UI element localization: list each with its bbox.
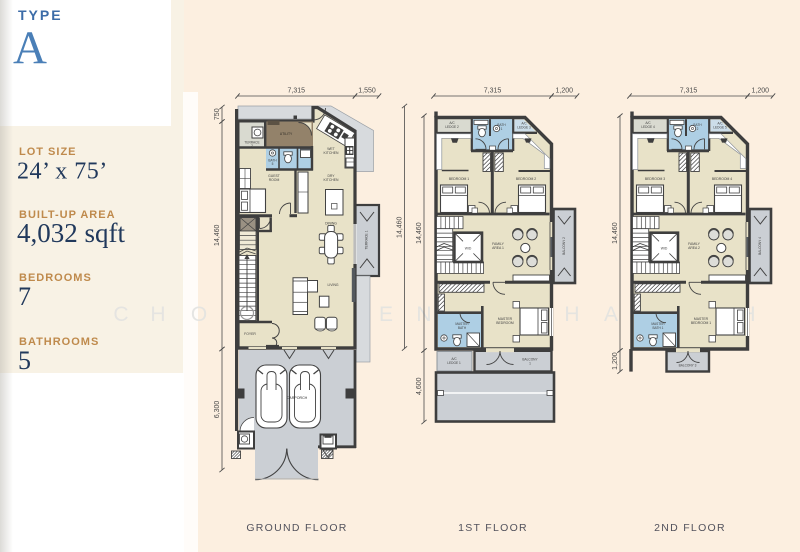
- svg-text:TYPE: TYPE: [18, 7, 63, 23]
- svg-text:LIVING: LIVING: [327, 283, 338, 287]
- svg-text:AREA 2: AREA 2: [688, 246, 700, 250]
- svg-text:BATH: BATH: [458, 326, 467, 330]
- svg-text:5: 5: [272, 162, 274, 166]
- svg-text:GROUND FLOOR: GROUND FLOOR: [246, 522, 347, 534]
- svg-text:BEDROOM 4: BEDROOM 4: [712, 177, 732, 181]
- svg-text:DINING: DINING: [325, 222, 337, 226]
- svg-text:1,550: 1,550: [358, 88, 376, 95]
- svg-text:ROOM: ROOM: [269, 178, 280, 182]
- svg-text:5: 5: [18, 346, 31, 375]
- svg-text:BEDROOM 1: BEDROOM 1: [449, 177, 469, 181]
- svg-text:1ST FLOOR: 1ST FLOOR: [458, 522, 528, 534]
- svg-text:BALCONY 3: BALCONY 3: [679, 364, 697, 368]
- svg-text:7,315: 7,315: [680, 88, 698, 95]
- svg-text:BATH 1: BATH 1: [653, 326, 664, 330]
- svg-text:BEDROOM 3: BEDROOM 3: [645, 177, 665, 181]
- svg-text:LEDGE 4: LEDGE 4: [641, 125, 655, 129]
- svg-text:24’ x 75’: 24’ x 75’: [17, 159, 108, 185]
- svg-text:4,600: 4,600: [416, 377, 423, 395]
- svg-text:4,032 sqft: 4,032 sqft: [17, 218, 125, 248]
- svg-text:LEDGE 2: LEDGE 2: [445, 125, 459, 129]
- svg-text:KITCHEN: KITCHEN: [324, 151, 339, 155]
- svg-text:LEDGE 3: LEDGE 3: [517, 126, 531, 130]
- svg-text:14,460: 14,460: [214, 224, 221, 246]
- svg-text:1,200: 1,200: [612, 352, 619, 370]
- svg-text:2ND FLOOR: 2ND FLOOR: [654, 522, 726, 534]
- svg-text:1: 1: [529, 362, 531, 366]
- svg-text:CARPORCH: CARPORCH: [287, 396, 308, 400]
- svg-text:BEDROOM 1: BEDROOM 1: [691, 321, 711, 325]
- svg-text:WID: WID: [661, 247, 668, 251]
- svg-text:1,200: 1,200: [555, 88, 573, 95]
- svg-text:AREA 1: AREA 1: [492, 246, 504, 250]
- svg-text:14,460: 14,460: [612, 222, 619, 244]
- svg-text:7,315: 7,315: [287, 88, 305, 95]
- svg-text:A: A: [13, 22, 47, 74]
- svg-text:LEDGE 1: LEDGE 1: [447, 361, 461, 365]
- svg-text:O: O: [191, 303, 207, 326]
- svg-text:7: 7: [18, 282, 31, 311]
- svg-text:A: A: [604, 303, 618, 326]
- svg-text:KITCHEN: KITCHEN: [324, 178, 339, 182]
- svg-text:1,200: 1,200: [751, 88, 769, 95]
- svg-text:BALCONY 4: BALCONY 4: [758, 237, 762, 255]
- svg-text:14,460: 14,460: [397, 216, 404, 238]
- svg-text:BEDROOM 2: BEDROOM 2: [516, 177, 536, 181]
- svg-text:WID: WID: [465, 247, 472, 251]
- svg-text:1: 1: [501, 127, 503, 131]
- svg-text:BALCONY 2: BALCONY 2: [562, 237, 566, 255]
- svg-text:7,315: 7,315: [484, 88, 502, 95]
- svg-text:14,460: 14,460: [416, 222, 423, 244]
- svg-text:2: 2: [697, 127, 699, 131]
- svg-text:E: E: [379, 303, 393, 326]
- svg-text:LOT SIZE: LOT SIZE: [19, 146, 77, 158]
- svg-text:750: 750: [214, 108, 221, 120]
- svg-text:FOYER: FOYER: [244, 332, 256, 336]
- svg-text:6,300: 6,300: [214, 401, 221, 419]
- svg-text:H: H: [150, 303, 165, 326]
- svg-text:BATHROOMS: BATHROOMS: [19, 336, 99, 348]
- svg-text:BEDROOM: BEDROOM: [496, 321, 514, 325]
- svg-text:UTILITY: UTILITY: [280, 132, 293, 136]
- svg-text:H: H: [564, 303, 579, 326]
- svg-text:TERRACE 1: TERRACE 1: [365, 230, 369, 249]
- svg-text:C: C: [113, 303, 128, 326]
- svg-text:LEDGE 5: LEDGE 5: [713, 126, 727, 130]
